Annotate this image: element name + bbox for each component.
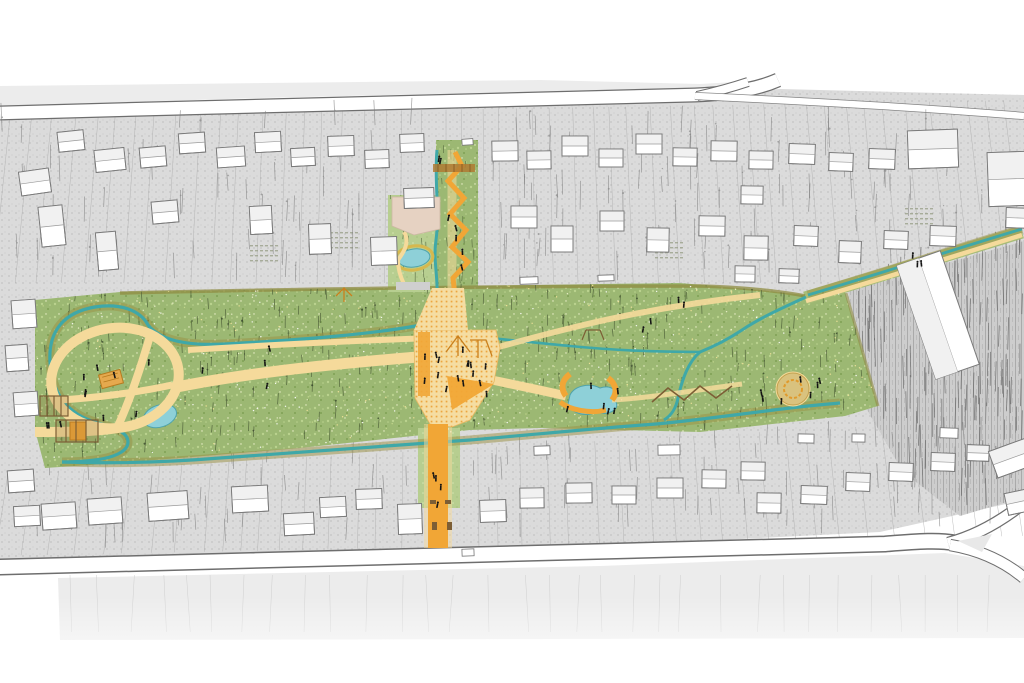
site-plan-svg xyxy=(0,0,1024,683)
pocket-pad xyxy=(396,282,430,290)
bottom-fade xyxy=(0,596,1024,683)
main-south-path xyxy=(428,424,448,548)
car-north xyxy=(462,139,473,146)
north-entry-corridor xyxy=(436,140,478,290)
site-plan-illustration xyxy=(0,0,1024,683)
car-south xyxy=(462,549,474,556)
plaza-west-band xyxy=(418,332,430,396)
